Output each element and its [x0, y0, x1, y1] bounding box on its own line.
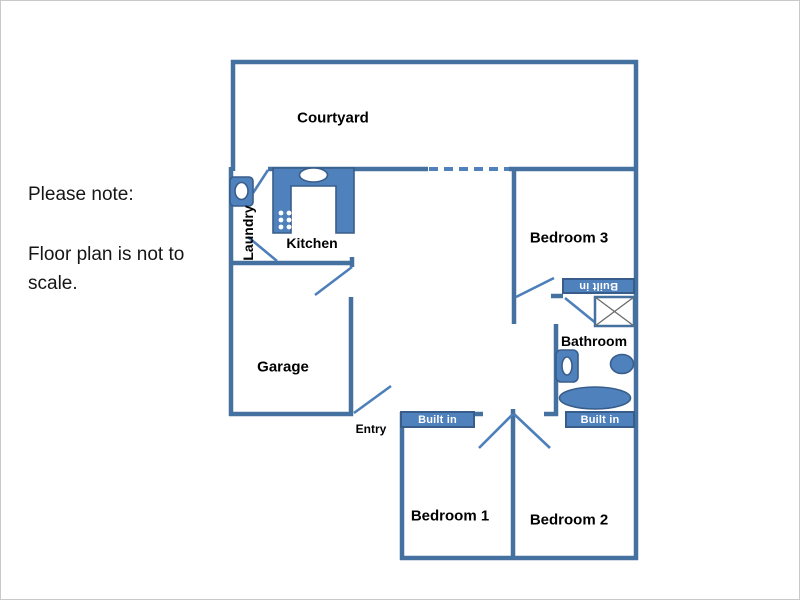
bedroom3-built-in: Built in: [562, 278, 635, 294]
bathroom-basin: [611, 355, 634, 374]
garage-label: Garage: [257, 359, 309, 376]
entry-label: Entry: [356, 422, 387, 436]
burner: [279, 225, 284, 230]
bedroom2-label: Bedroom 2: [530, 512, 608, 529]
burner: [287, 225, 292, 230]
bedroom3-label: Bedroom 3: [530, 230, 608, 247]
burner: [279, 211, 284, 216]
bathroom-label: Bathroom: [561, 333, 627, 349]
bedroom1-built-in: Built in: [400, 411, 475, 428]
toilet-bowl: [562, 357, 572, 375]
courtyard-label: Courtyard: [297, 110, 369, 127]
entry-door: [354, 386, 391, 413]
walls: [229, 60, 638, 560]
floor-plan-slide: Please note: Floor plan is not to scale.: [0, 0, 800, 600]
burner: [287, 211, 292, 216]
bedroom2-door: [514, 414, 550, 448]
laundry-label: Laundry: [240, 205, 256, 260]
burner: [287, 218, 292, 223]
door-swings: [248, 170, 597, 448]
garage-door: [315, 267, 352, 295]
laundry-courtyard-door: [253, 170, 268, 193]
kitchen-label: Kitchen: [286, 235, 337, 251]
bedroom1-door: [479, 414, 513, 448]
bedroom1-label: Bedroom 1: [411, 508, 489, 525]
bedroom3-door: [516, 278, 554, 297]
floor-plan-drawing: [1, 1, 799, 599]
washing-machine-door: [235, 183, 248, 200]
bathtub: [560, 387, 631, 409]
bedroom2-built-in: Built in: [565, 411, 635, 428]
bathroom-door: [565, 298, 597, 324]
kitchen-sink: [300, 168, 328, 182]
burner: [279, 218, 284, 223]
